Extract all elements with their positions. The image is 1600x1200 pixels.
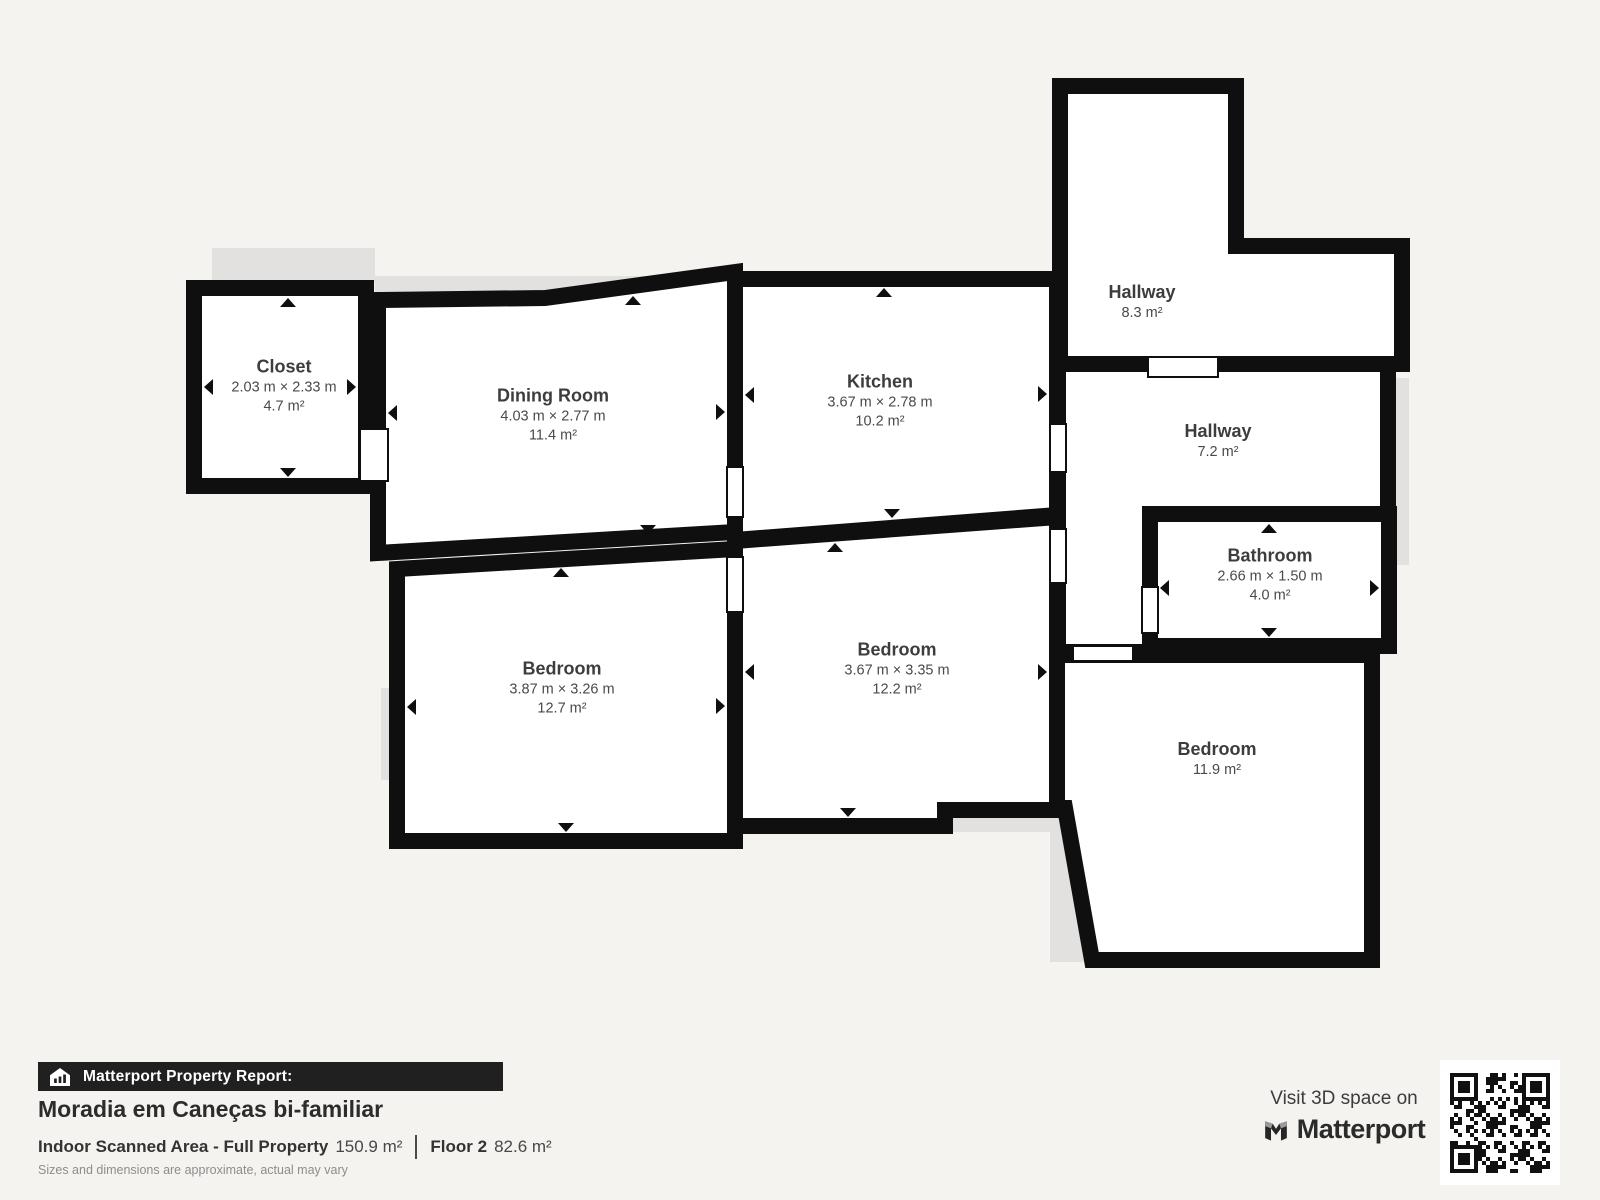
qr-code: [1440, 1060, 1560, 1185]
room-area: 11.4 m²: [497, 426, 609, 445]
disclaimer-text: Sizes and dimensions are approximate, ac…: [38, 1163, 348, 1177]
door-dining-kitchen: [727, 467, 743, 517]
room-area: 7.2 m²: [1184, 443, 1251, 462]
scanned-house-icon: [50, 1068, 70, 1086]
floor-label: Floor 2: [430, 1137, 487, 1157]
room-dimensions: 2.66 m × 1.50 m: [1217, 567, 1322, 586]
door-kitchen-hallway: [1050, 424, 1066, 472]
visit-3d-space-text: Visit 3D space on: [1256, 1088, 1432, 1110]
room-label-hallway-upper: Hallway 8.3 m²: [1108, 281, 1175, 323]
floor-plan-report-page: Closet 2.03 m × 2.33 m 4.7 m² Dining Roo…: [0, 0, 1600, 1200]
room-area: 4.0 m²: [1217, 586, 1322, 605]
room-name: Dining Room: [497, 385, 609, 408]
room-name: Kitchen: [827, 371, 932, 394]
matterport-logo-icon: [1263, 1117, 1289, 1143]
room-label-closet: Closet 2.03 m × 2.33 m 4.7 m²: [231, 356, 336, 417]
room-area: 4.7 m²: [231, 397, 336, 416]
area-stats-line: Indoor Scanned Area - Full Property 150.…: [38, 1135, 552, 1159]
scanned-area-value: 150.9 m²: [335, 1137, 402, 1157]
matterport-wordmark: Matterport: [1297, 1114, 1426, 1145]
branding-block: Visit 3D space on Matterport: [1256, 1088, 1432, 1145]
room-dimensions: 4.03 m × 2.77 m: [497, 407, 609, 426]
room-label-dining-room: Dining Room 4.03 m × 2.77 m 11.4 m²: [497, 385, 609, 446]
room-label-bedroom-left: Bedroom 3.87 m × 3.26 m 12.7 m²: [509, 658, 614, 719]
room-area: 12.7 m²: [509, 699, 614, 718]
qr-code-pattern: [1450, 1073, 1550, 1173]
room-name: Hallway: [1108, 281, 1175, 304]
room-area: 8.3 m²: [1108, 304, 1175, 323]
property-title: Moradia em Caneças bi-familiar: [38, 1096, 383, 1123]
scanned-area-label: Indoor Scanned Area - Full Property: [38, 1137, 328, 1157]
room-name: Bedroom: [844, 639, 949, 662]
floor-plan: [0, 0, 1600, 1200]
report-header-bar: Matterport Property Report:: [38, 1062, 503, 1091]
door-hallway-bedroom-middle: [1050, 529, 1066, 583]
door-hallway-bathroom: [1142, 587, 1158, 633]
door-bedrooms-left-middle: [727, 557, 743, 612]
brand-row: Matterport: [1256, 1114, 1432, 1145]
room-label-bathroom: Bathroom 2.66 m × 1.50 m 4.0 m²: [1217, 545, 1322, 606]
room-dimensions: 3.67 m × 3.35 m: [844, 661, 949, 680]
room-name: Hallway: [1184, 420, 1251, 443]
room-label-kitchen: Kitchen 3.67 m × 2.78 m 10.2 m²: [827, 371, 932, 432]
door-hallway-bedroom-right: [1073, 646, 1133, 661]
room-label-bedroom-middle: Bedroom 3.67 m × 3.35 m 12.2 m²: [844, 639, 949, 700]
door-closet-dining: [360, 429, 388, 481]
room-name: Closet: [231, 356, 336, 379]
room-walls-bedroom-right: [1057, 655, 1372, 960]
room-dimensions: 2.03 m × 2.33 m: [231, 378, 336, 397]
room-area: 10.2 m²: [827, 412, 932, 431]
stats-divider: [415, 1135, 417, 1159]
room-area: 11.9 m²: [1177, 761, 1256, 780]
room-dimensions: 3.67 m × 2.78 m: [827, 393, 932, 412]
room-name: Bedroom: [1177, 738, 1256, 761]
report-bar-label: Matterport Property Report:: [83, 1068, 293, 1086]
room-dimensions: 3.87 m × 3.26 m: [509, 680, 614, 699]
room-label-hallway-lower: Hallway 7.2 m²: [1184, 420, 1251, 462]
room-area: 12.2 m²: [844, 680, 949, 699]
door-hallway-hallway: [1148, 357, 1218, 377]
room-name: Bedroom: [509, 658, 614, 681]
room-label-bedroom-right: Bedroom 11.9 m²: [1177, 738, 1256, 780]
floor-area-value: 82.6 m²: [494, 1137, 552, 1157]
room-name: Bathroom: [1217, 545, 1322, 568]
